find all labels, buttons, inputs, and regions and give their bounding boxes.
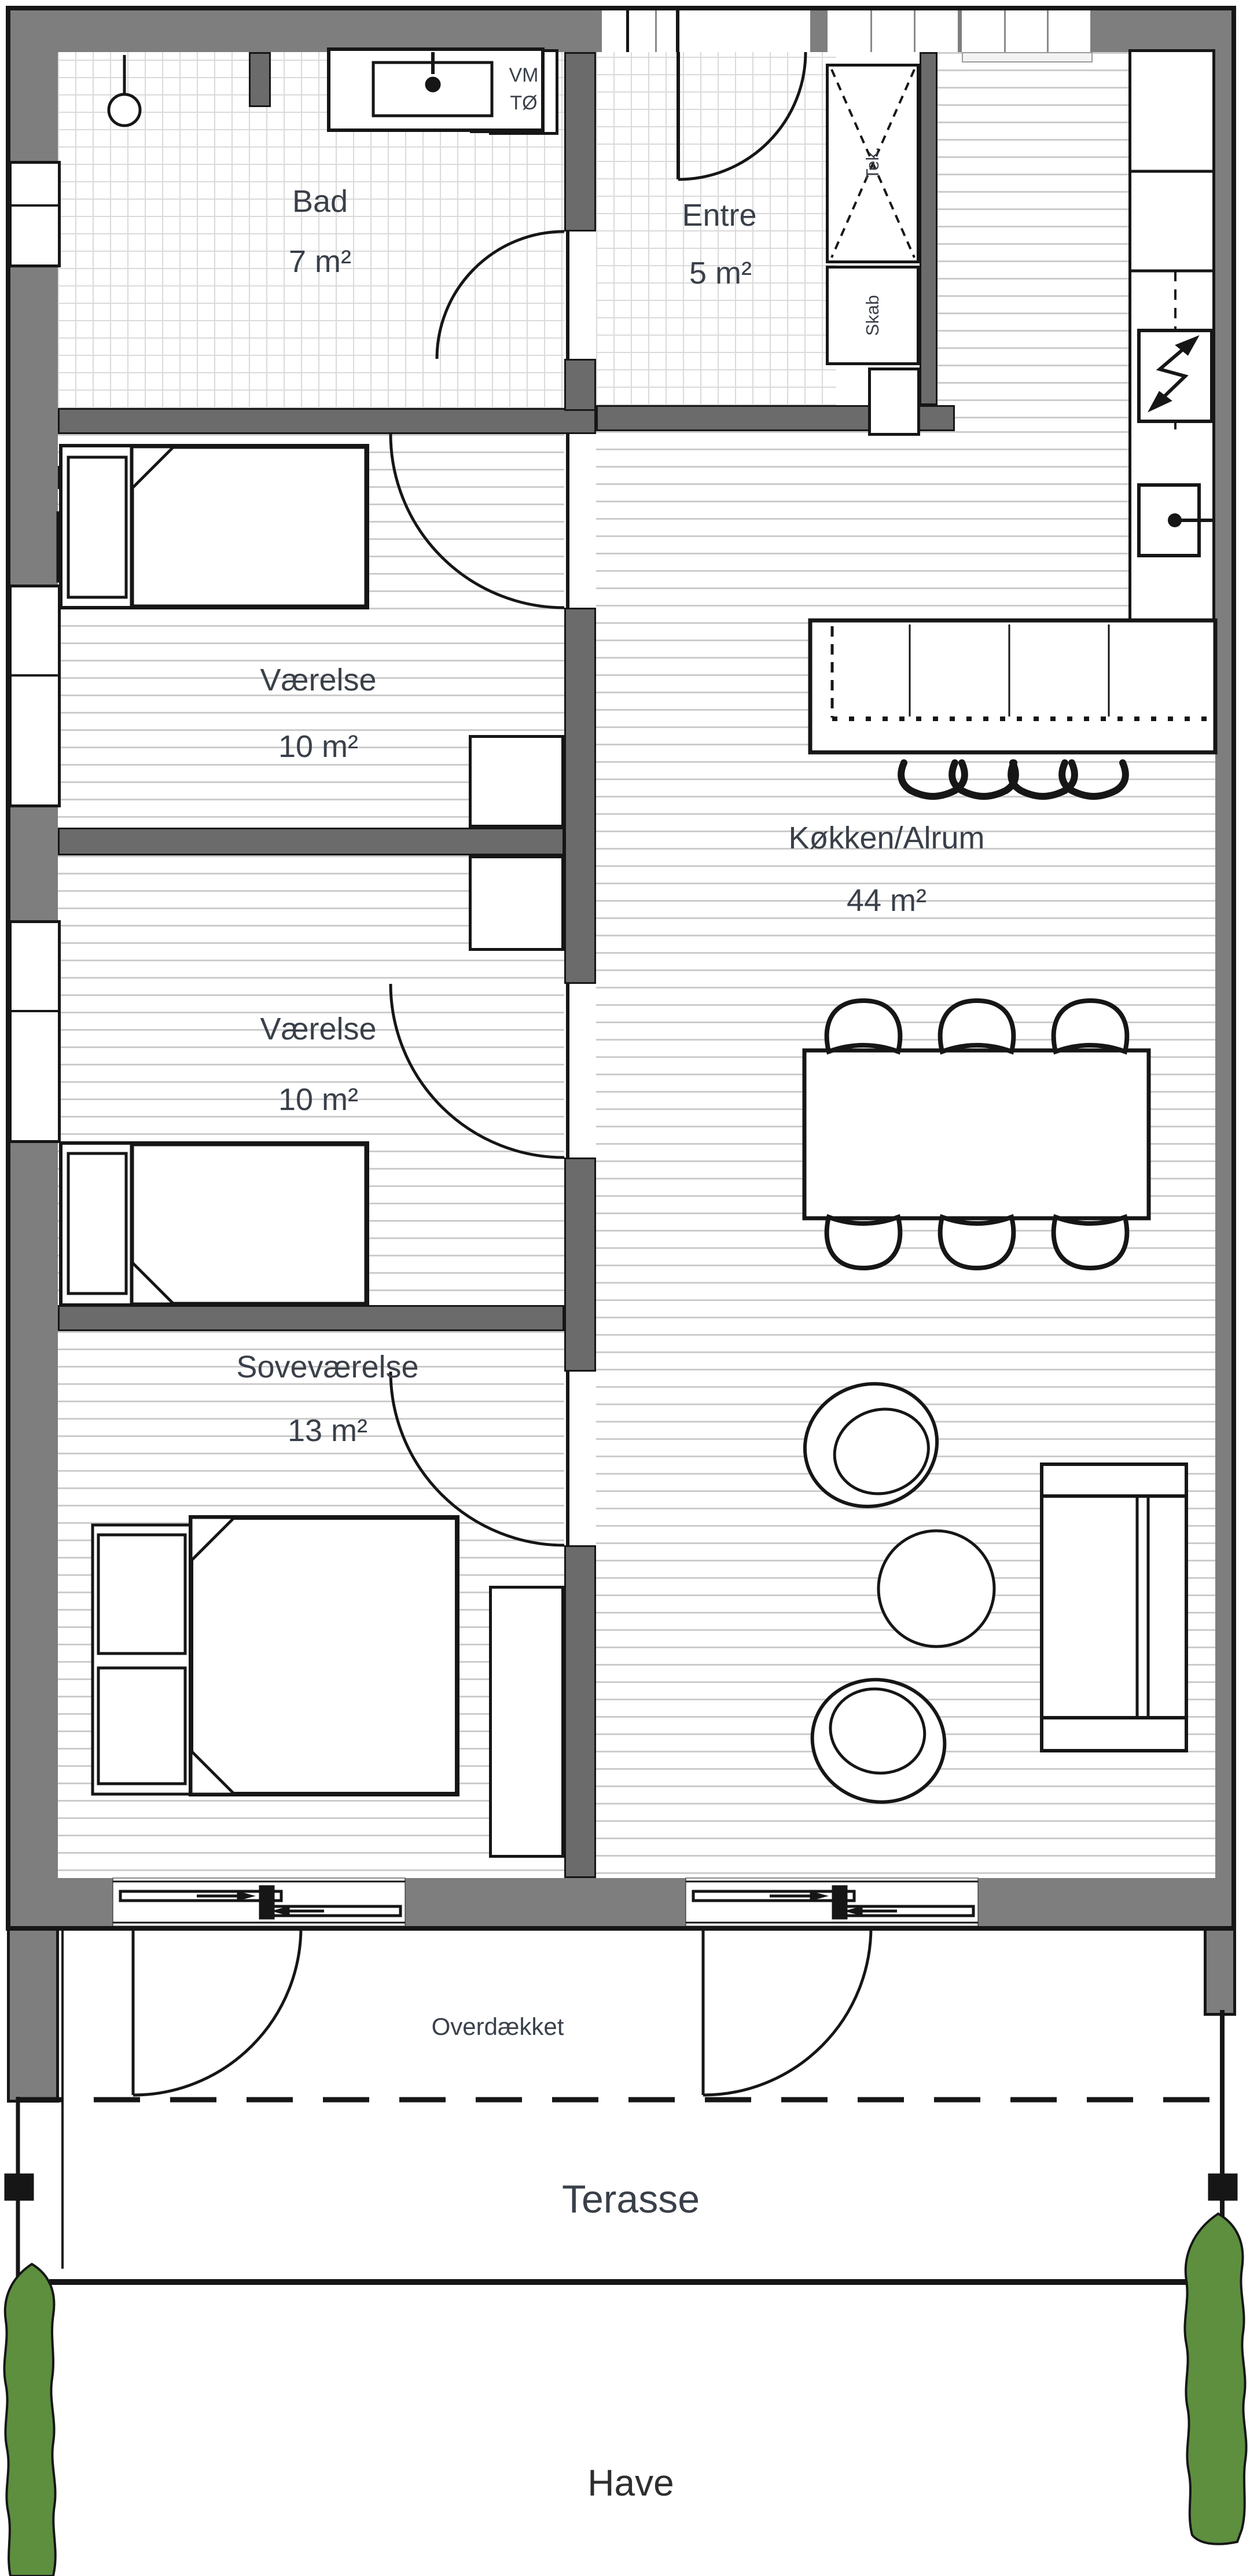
room-label-bad: Bad (292, 183, 348, 219)
room-label-vaerelse2: Værelse (260, 1011, 376, 1047)
room-label-koekken: Køkken/Alrum (788, 820, 984, 856)
room-label-sovevaerelse: Soveværelse (236, 1349, 418, 1385)
door-arc-terrace-right (703, 1927, 871, 2095)
room-label-vaerelse1: Værelse (260, 662, 376, 698)
closet-label-vm: VM (509, 63, 539, 88)
closet-label-skab: Skab (862, 295, 883, 336)
outdoor-label-overdaekket: Overdækket (432, 2013, 564, 2041)
room-area-koekken: 44 m² (847, 883, 927, 918)
room-area-bad: 7 m² (289, 244, 351, 280)
room-area-vaerelse2: 10 m² (278, 1082, 358, 1118)
floor-plan-canvas: Bad 7 m² Entre 5 m² Værelse 10 m² Værels… (0, 0, 1250, 2576)
outdoor-label-terasse: Terasse (562, 2177, 700, 2222)
room-area-sovevaerelse: 13 m² (288, 1413, 367, 1449)
terrace-post-left (5, 1927, 62, 2282)
room-area-vaerelse1: 10 m² (278, 729, 358, 765)
hedge-icon-left (4, 2264, 55, 2576)
hedge-icon-right (1185, 2214, 1246, 2544)
house-outline (6, 6, 1236, 1931)
room-label-entre: Entre (682, 197, 756, 233)
door-arc-terrace-left (133, 1927, 301, 2095)
outdoor-label-have: Have (587, 2461, 674, 2504)
closet-label-tek: Tek. (862, 147, 883, 180)
room-area-entre: 5 m² (689, 255, 752, 291)
closet-label-toe: TØ (510, 91, 537, 116)
